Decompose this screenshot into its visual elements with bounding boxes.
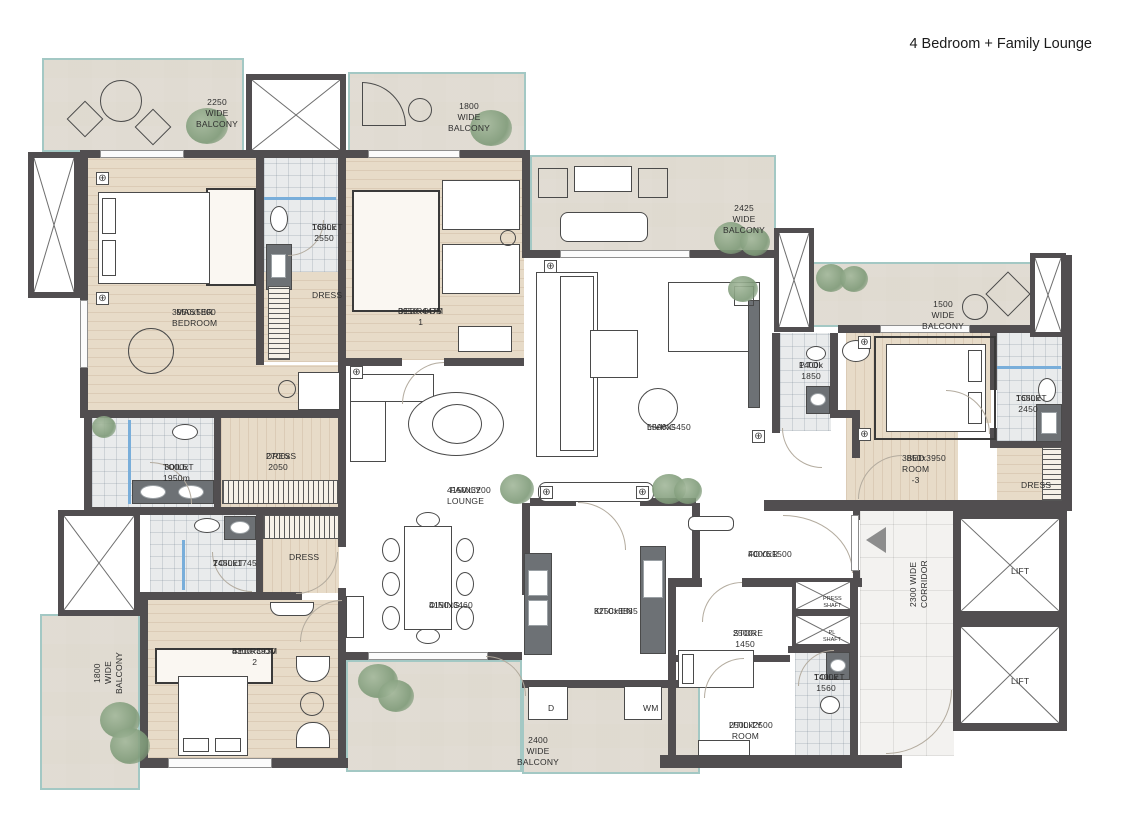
- washbasin: [810, 393, 826, 406]
- power-point-icon: [350, 366, 363, 379]
- pillow: [102, 198, 116, 234]
- chair: [456, 572, 474, 596]
- armchair: [128, 328, 174, 374]
- washbasin: [1041, 412, 1057, 434]
- bedside-table: [500, 230, 516, 246]
- power-point-icon: [544, 260, 557, 273]
- balcony-chair: [638, 168, 668, 198]
- floor-plan: 4 Bedroom + Family Lounge: [0, 0, 1126, 826]
- entry-door-leaf: [851, 515, 859, 571]
- wall: [256, 513, 263, 598]
- shower-glass: [128, 420, 131, 504]
- lounge-table-top: [432, 404, 482, 444]
- dresser: [270, 602, 314, 616]
- pillow: [682, 654, 694, 684]
- shower-glass: [182, 540, 185, 590]
- plant: [92, 416, 116, 438]
- chair: [382, 606, 400, 630]
- wall: [668, 578, 676, 760]
- wc: [806, 346, 826, 361]
- wardrobe: [222, 480, 338, 504]
- wall: [256, 150, 264, 365]
- dining-table: [404, 526, 452, 630]
- wall: [522, 150, 530, 258]
- wall: [84, 410, 346, 418]
- wc: [194, 518, 220, 533]
- desk: [458, 326, 512, 352]
- wc: [270, 206, 288, 232]
- wc: [820, 696, 840, 714]
- wall: [346, 358, 402, 366]
- lift-2: [953, 619, 1067, 731]
- window: [100, 150, 184, 158]
- sideboard: [346, 596, 364, 638]
- wall: [84, 410, 92, 515]
- chair: [382, 538, 400, 562]
- wall: [144, 592, 302, 600]
- pillow: [102, 240, 116, 276]
- window: [560, 250, 690, 258]
- power-point-icon: [636, 486, 649, 499]
- plant: [840, 266, 868, 292]
- washbasin: [230, 521, 250, 534]
- tv-console: [748, 300, 760, 408]
- window: [168, 758, 272, 768]
- cabinet: [698, 740, 750, 756]
- wardrobe-box: [352, 190, 440, 312]
- wall: [214, 418, 221, 510]
- wardrobe: [263, 515, 339, 539]
- shaft-mid: [774, 228, 814, 332]
- sink: [528, 600, 548, 626]
- wall: [764, 500, 1072, 511]
- power-point-icon: [96, 292, 109, 305]
- balcony-sofa: [560, 212, 648, 242]
- pillow: [183, 738, 209, 752]
- power-point-icon: [540, 486, 553, 499]
- power-point-icon: [858, 428, 871, 441]
- wall: [338, 150, 346, 365]
- plan-title: 4 Bedroom + Family Lounge: [909, 36, 1092, 52]
- shower-glass: [264, 197, 336, 200]
- shaft-bottom-left: [58, 510, 140, 616]
- shoe-cabinet: [688, 516, 734, 531]
- wall: [830, 333, 838, 418]
- window: [80, 300, 88, 368]
- window: [368, 150, 460, 158]
- wc: [172, 424, 198, 440]
- hob: [643, 560, 663, 598]
- wall: [660, 755, 902, 768]
- plant: [728, 276, 758, 302]
- power-point-icon: [96, 172, 109, 185]
- power-point-icon: [752, 430, 765, 443]
- chair: [416, 628, 440, 644]
- side-table: [300, 692, 324, 716]
- balcony-chair: [538, 168, 568, 198]
- wall: [80, 150, 88, 418]
- pillow: [215, 738, 241, 752]
- washbasin: [271, 254, 286, 278]
- balcony-table: [962, 294, 988, 320]
- wardrobe: [1042, 447, 1062, 501]
- entry-arrow-icon: [866, 527, 886, 553]
- wall: [830, 410, 860, 418]
- window: [368, 652, 488, 660]
- shower-glass: [997, 366, 1061, 369]
- balcony-table: [574, 166, 632, 192]
- chair: [382, 572, 400, 596]
- wall: [772, 333, 780, 433]
- dressing-table: [298, 372, 340, 410]
- wall: [346, 652, 368, 660]
- shaft-top-right: [1030, 253, 1066, 337]
- lift-1: [953, 511, 1067, 619]
- seat: [296, 722, 330, 748]
- plant: [674, 478, 702, 504]
- wardrobe: [268, 286, 290, 360]
- sink: [528, 570, 548, 596]
- balcony-table: [100, 80, 142, 122]
- bed-frame: [206, 188, 256, 286]
- chair: [456, 538, 474, 562]
- single-bed: [442, 244, 520, 294]
- single-bed: [442, 180, 520, 230]
- shaft-top: [246, 74, 346, 156]
- pillow: [968, 350, 982, 382]
- stool: [278, 380, 296, 398]
- shaft-left-top: [28, 152, 80, 298]
- plant: [378, 680, 414, 712]
- sofa-seats: [560, 276, 594, 451]
- balcony-table: [408, 98, 432, 122]
- wall: [692, 503, 700, 578]
- power-point-icon: [858, 336, 871, 349]
- plant: [110, 728, 150, 764]
- plant: [500, 474, 534, 504]
- wall: [853, 570, 860, 580]
- wall: [444, 358, 524, 366]
- coffee-table: [590, 330, 638, 378]
